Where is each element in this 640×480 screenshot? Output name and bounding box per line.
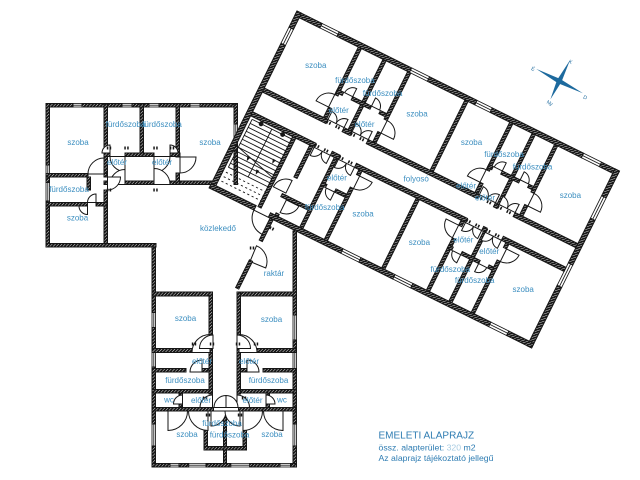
svg-text:fürdőszoba: fürdőszoba: [49, 185, 89, 194]
svg-text:fürdőszoba: fürdőszoba: [431, 265, 471, 274]
svg-text:fürdőszoba: fürdőszoba: [202, 419, 242, 428]
svg-text:szoba: szoba: [199, 138, 221, 147]
svg-text:wc: wc: [163, 396, 174, 405]
svg-text:szoba: szoba: [406, 110, 428, 119]
svg-text:szoba: szoba: [352, 210, 374, 219]
svg-text:raktár: raktár: [264, 269, 285, 278]
svg-text:fürdőszoba: fürdőszoba: [165, 376, 205, 385]
svg-text:előtér: előtér: [453, 235, 473, 244]
svg-text:közlekedő: közlekedő: [200, 224, 237, 233]
svg-text:össz. alapterület: 320 m2: össz. alapterület: 320 m2: [379, 443, 476, 453]
svg-text:szoba: szoba: [176, 430, 198, 439]
svg-text:szoba: szoba: [67, 138, 89, 147]
svg-text:szoba: szoba: [560, 191, 582, 200]
svg-text:fürdőszoba: fürdőszoba: [210, 431, 250, 440]
svg-text:fürdőszoba: fürdőszoba: [363, 89, 403, 98]
svg-text:előtér: előtér: [327, 174, 347, 183]
svg-text:fürdőszoba: fürdőszoba: [484, 150, 524, 159]
svg-text:előtér: előtér: [329, 106, 349, 115]
svg-text:szoba: szoba: [305, 61, 327, 70]
svg-text:előtér: előtér: [152, 158, 172, 167]
svg-text:előtér: előtér: [479, 247, 499, 256]
svg-text:fürdőszoba: fürdőszoba: [513, 162, 553, 171]
svg-text:szoba: szoba: [261, 430, 283, 439]
svg-text:fürdőszoba: fürdőszoba: [305, 203, 345, 212]
svg-text:fürdőszoba: fürdőszoba: [335, 76, 375, 85]
svg-text:EMELETI ALAPRAJZ: EMELETI ALAPRAJZ: [379, 431, 475, 442]
svg-text:folyosó: folyosó: [404, 174, 430, 183]
svg-text:fürdőszoba: fürdőszoba: [249, 376, 289, 385]
svg-text:előtér: előtér: [192, 357, 212, 366]
svg-text:szoba: szoba: [67, 214, 89, 223]
svg-text:fürdőszoba: fürdőszoba: [106, 120, 146, 129]
svg-text:előtér: előtér: [191, 396, 211, 405]
svg-text:előtér: előtér: [107, 158, 127, 167]
svg-text:szoba: szoba: [513, 285, 535, 294]
svg-text:fürdőszoba: fürdőszoba: [142, 120, 182, 129]
svg-text:előtér: előtér: [239, 357, 259, 366]
svg-text:Az alaprajz tájékoztató jelleg: Az alaprajz tájékoztató jellegű: [379, 453, 494, 463]
svg-text:előtér: előtér: [475, 194, 495, 203]
svg-text:szoba: szoba: [409, 238, 431, 247]
svg-text:előtér: előtér: [456, 181, 476, 190]
svg-text:fürdőszoba: fürdőszoba: [455, 276, 495, 285]
svg-text:wc: wc: [276, 396, 287, 405]
svg-text:szoba: szoba: [261, 315, 283, 324]
svg-text:előtér: előtér: [354, 120, 374, 129]
svg-text:előtér: előtér: [242, 396, 262, 405]
svg-text:szoba: szoba: [175, 314, 197, 323]
svg-text:szoba: szoba: [461, 138, 483, 147]
